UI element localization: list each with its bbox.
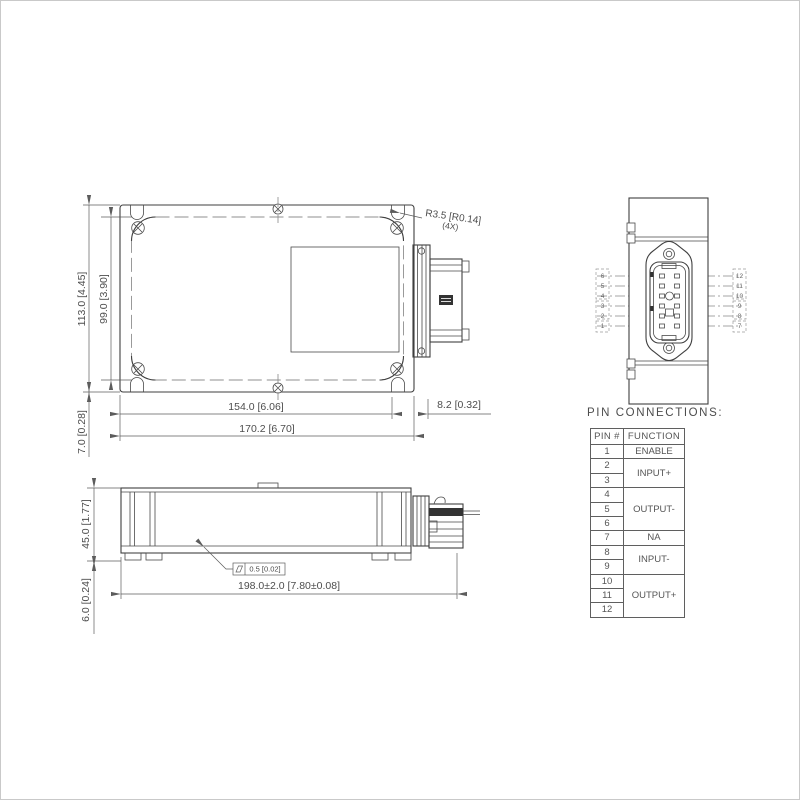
pin-label-right-0: 12 <box>736 273 744 280</box>
table-row: 10 OUTPUT+ <box>591 574 685 588</box>
table-row: 1 ENABLE <box>591 445 685 459</box>
connector-band <box>429 508 463 516</box>
pin-cell: 3 <box>591 473 624 487</box>
pin-label-right-1: 11 <box>736 283 743 290</box>
corner-fillets <box>132 217 404 380</box>
technical-drawing-canvas: 113.0 [4.45] 99.0 [3.90] 7.0 [0.28] 154.… <box>0 0 800 800</box>
pin-cell: 12 <box>591 603 624 617</box>
side-view: 0.5 [0.02] 45.0 [1.77] 6.0 [0.24] 198.0±… <box>80 483 480 634</box>
pin-cell: 5 <box>591 502 624 516</box>
dim-width-outer: 170.2 [6.70] <box>239 423 295 435</box>
pin-label-right-4: 8 <box>738 313 742 320</box>
connector-plan <box>413 245 469 357</box>
table-header-row: PIN # FUNCTION <box>591 429 685 445</box>
pin-label-left-1: 5 <box>601 283 605 290</box>
flatness-callout: 0.5 [0.02] <box>204 547 285 575</box>
flatness-value: 0.5 [0.02] <box>249 565 280 574</box>
function-column-header: FUNCTION <box>624 429 685 445</box>
dim-width-inner: 154.0 [6.06] <box>228 401 284 413</box>
table-row: 7 NA <box>591 531 685 545</box>
pin-label-left-4: 2 <box>601 313 605 320</box>
latch-dot-top <box>651 272 654 277</box>
internal-component-outline <box>291 247 399 352</box>
pin-cell: 9 <box>591 560 624 574</box>
mounting-feet <box>125 553 411 560</box>
dim-height-outer: 113.0 [4.45] <box>76 272 88 327</box>
dim-connector-protrusion: 8.2 [0.32] <box>437 399 481 411</box>
function-cell: OUTPUT- <box>624 488 685 531</box>
dim-side-base: 6.0 [0.24] <box>80 578 92 622</box>
pin-cell: 7 <box>591 531 624 545</box>
pin-cell: 6 <box>591 517 624 531</box>
dim-height-inner: 99.0 [3.90] <box>98 274 110 324</box>
function-cell: OUTPUT+ <box>624 574 685 617</box>
pin-label-right-3: 9 <box>738 303 742 310</box>
radius-qty: (4X) <box>442 220 459 232</box>
flatness-symbol <box>236 566 243 572</box>
pin-cell: 4 <box>591 488 624 502</box>
function-cell: ENABLE <box>624 445 685 459</box>
table-row: 2 INPUT+ <box>591 459 685 473</box>
pin-label-left-5: 1 <box>601 323 605 330</box>
pin-label-left-2: 4 <box>601 293 605 300</box>
pin-cell: 11 <box>591 589 624 603</box>
dim-edge-offset: 7.0 [0.28] <box>76 410 88 454</box>
top-view-dimension-lines <box>89 205 491 457</box>
pin-cell: 2 <box>591 459 624 473</box>
pin-column-header: PIN # <box>591 429 624 445</box>
pin-label-left-3: 3 <box>601 303 605 310</box>
drawing-svg: 113.0 [4.45] 99.0 [3.90] 7.0 [0.28] 154.… <box>1 1 799 799</box>
latch-dot-bottom <box>651 306 654 311</box>
table-row: 8 INPUT- <box>591 545 685 559</box>
pin-label-right-2: 10 <box>736 293 744 300</box>
wire-clip <box>434 497 445 504</box>
connector-housing <box>650 262 689 343</box>
connector-side <box>413 496 480 548</box>
function-cell: INPUT- <box>624 545 685 574</box>
lid-boss <box>258 483 278 488</box>
side-view-body <box>121 488 411 553</box>
pin-cell: 8 <box>591 545 624 559</box>
pin-cell: 1 <box>591 445 624 459</box>
dim-side-length: 198.0±2.0 [7.80±0.08] <box>238 580 340 592</box>
pin-cell: 10 <box>591 574 624 588</box>
side-view-seams <box>121 492 411 546</box>
top-view: 113.0 [4.45] 99.0 [3.90] 7.0 [0.28] 154.… <box>76 197 491 457</box>
pin-connections-title: PIN CONNECTIONS: <box>587 407 777 419</box>
top-view-outer-plate <box>120 205 414 392</box>
function-cell: NA <box>624 531 685 545</box>
table-row: 4 OUTPUT- <box>591 488 685 502</box>
corner-posts <box>130 492 406 546</box>
edge-screws <box>273 197 283 400</box>
side-view-dimension-lines <box>94 488 457 634</box>
function-cell: INPUT+ <box>624 459 685 488</box>
end-view: 6 5 4 3 2 1 12 11 10 9 8 7 <box>596 198 746 404</box>
connector-label <box>439 295 453 305</box>
lid-seam-hidden-line <box>132 217 404 380</box>
dim-side-height: 45.0 [1.77] <box>80 499 92 549</box>
connector-pin-tails <box>463 511 480 515</box>
mounting-slots <box>131 205 405 392</box>
pin-label-left-0: 6 <box>601 273 605 280</box>
pin-connections-table: PIN # FUNCTION 1 ENABLE 2 INPUT+ 3 4 OUT… <box>590 428 685 618</box>
pin-label-right-5: 7 <box>738 323 742 330</box>
